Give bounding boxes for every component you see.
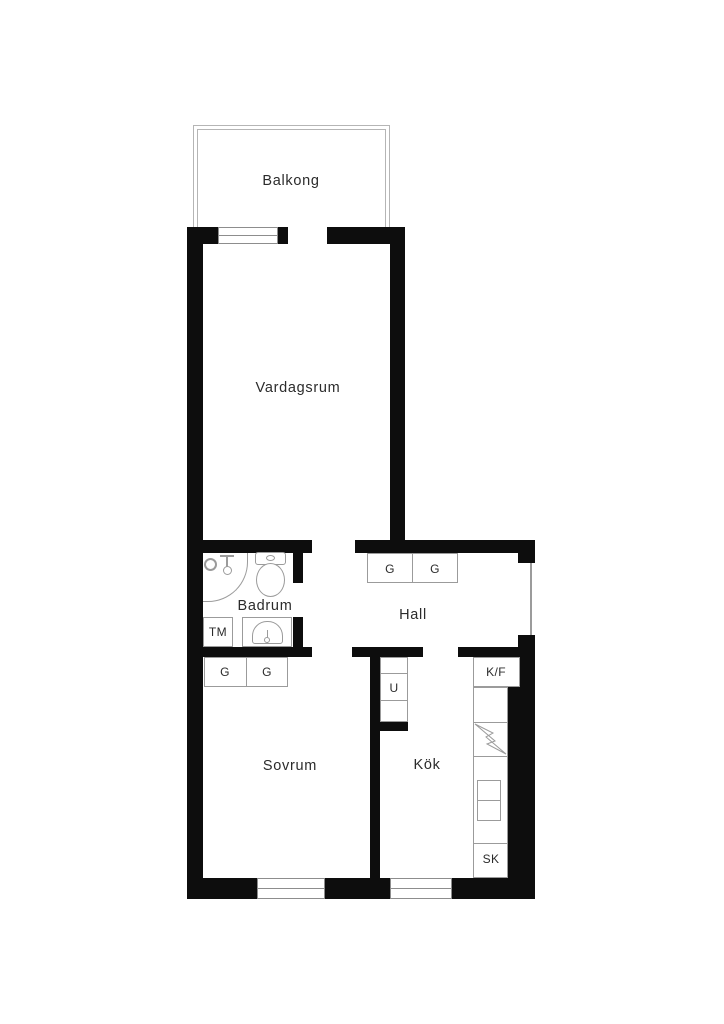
stove-plate-top-icon bbox=[477, 780, 501, 801]
bathroom-label: Badrum bbox=[238, 598, 293, 614]
fridge-freezer-label: K/F bbox=[486, 665, 506, 679]
wall-kitchen-left bbox=[370, 647, 380, 878]
window-pane-line bbox=[258, 888, 324, 889]
oven-unit-label: U bbox=[389, 681, 398, 695]
wall-lower-mid bbox=[352, 647, 423, 657]
wall-mid-right bbox=[355, 540, 535, 553]
wall-bottom-2 bbox=[325, 878, 390, 899]
wall-lower-left bbox=[187, 647, 312, 657]
faucet-knob bbox=[223, 566, 232, 575]
wall-bathroom-right-top bbox=[293, 553, 303, 583]
window-kitchen bbox=[390, 878, 452, 899]
wardrobe-label-bedroom-1: G bbox=[220, 665, 230, 679]
window-pane-line bbox=[219, 235, 277, 236]
toilet-bowl-icon bbox=[256, 563, 285, 597]
wall-bottom-1 bbox=[187, 878, 257, 899]
drain-icon bbox=[204, 558, 217, 571]
counter-divider-3 bbox=[473, 843, 508, 844]
wardrobe-label-hall-1: G bbox=[385, 562, 395, 576]
window-bedroom bbox=[257, 878, 325, 899]
counter-divider-2 bbox=[473, 756, 508, 757]
wall-bathroom-right-bottom bbox=[293, 617, 303, 647]
kitchen-label: Kök bbox=[413, 757, 440, 773]
wall-right-kf-level bbox=[520, 657, 535, 687]
bedroom-label: Sovrum bbox=[263, 758, 317, 774]
stove-plate-bottom-icon bbox=[477, 800, 501, 821]
window-pane-line bbox=[391, 888, 451, 889]
oven-unit-divider-2 bbox=[380, 700, 408, 701]
balcony-label: Balkong bbox=[262, 173, 319, 189]
hall-label: Hall bbox=[399, 607, 427, 623]
wardrobe-label-bedroom-2: G bbox=[262, 665, 272, 679]
wardrobe-label-hall-2: G bbox=[430, 562, 440, 576]
entrance-door-line bbox=[530, 563, 532, 635]
toilet-button bbox=[266, 555, 275, 561]
wall-mid-left bbox=[187, 540, 312, 553]
oven-unit-divider-1 bbox=[380, 673, 408, 674]
wall-left bbox=[187, 227, 203, 899]
wall-right-lower bbox=[508, 687, 535, 878]
wardrobe-divider-bedroom bbox=[246, 657, 247, 687]
wall-bottom-3 bbox=[452, 878, 535, 899]
living-room-label: Vardagsrum bbox=[256, 380, 341, 396]
wall-entry-top-corner bbox=[518, 540, 535, 563]
cabinet-label: SK bbox=[483, 852, 500, 866]
wall-kitchen-stub bbox=[370, 722, 408, 731]
wall-livingroom-right bbox=[390, 227, 405, 553]
washing-machine-label: TM bbox=[209, 625, 227, 639]
washbasin-tap-knob bbox=[264, 637, 270, 643]
wall-top-mid bbox=[278, 227, 288, 244]
window-livingroom bbox=[218, 227, 278, 244]
stove-lightning-icon bbox=[473, 722, 508, 756]
wardrobe-divider-hall bbox=[412, 553, 413, 583]
floorplan-canvas: Balkong Vardagsrum Badrum Hall Sovrum Kö… bbox=[0, 0, 724, 1024]
wall-lower-right bbox=[458, 647, 535, 657]
